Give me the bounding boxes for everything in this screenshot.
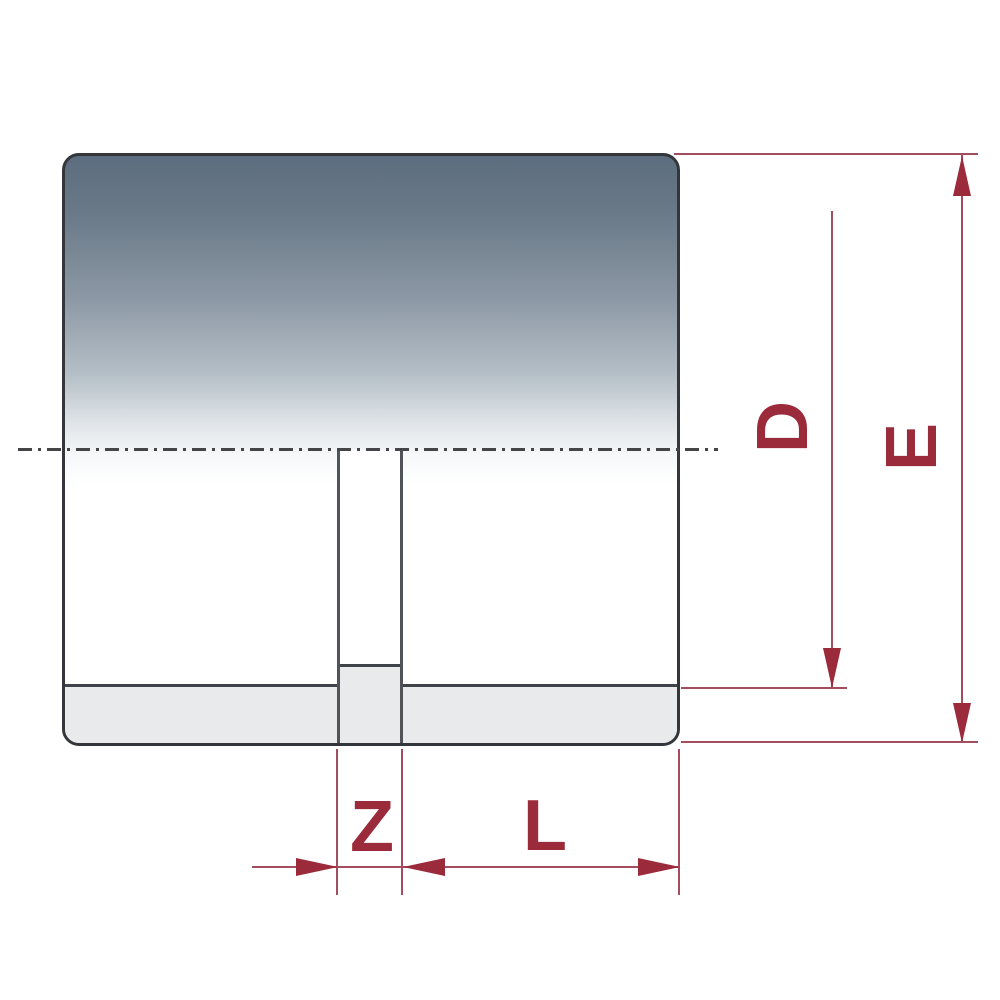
diagram-canvas: D E Z L	[0, 0, 1000, 1000]
arrowhead-d-bottom	[823, 648, 841, 688]
arrowhead-l-right	[638, 858, 680, 876]
extension-line-top	[674, 153, 978, 155]
extension-line-e-bottom	[681, 741, 978, 743]
socket-stop-block	[340, 664, 400, 743]
arrowhead-e-bottom	[953, 703, 971, 743]
arrowhead-e-top	[953, 156, 971, 196]
dimension-label-d: D	[747, 401, 819, 453]
dimension-line-e	[961, 155, 963, 743]
dimension-label-e: E	[876, 423, 948, 471]
centerline	[18, 448, 718, 451]
dimension-line-d	[831, 211, 833, 688]
arrowhead-z-right	[296, 858, 338, 876]
extension-line-d-bottom	[681, 687, 847, 689]
arrowhead-l-left	[403, 858, 445, 876]
dimension-label-l: L	[523, 790, 567, 862]
dimension-label-z: Z	[350, 791, 394, 863]
socket-stop-strip	[337, 450, 403, 743]
